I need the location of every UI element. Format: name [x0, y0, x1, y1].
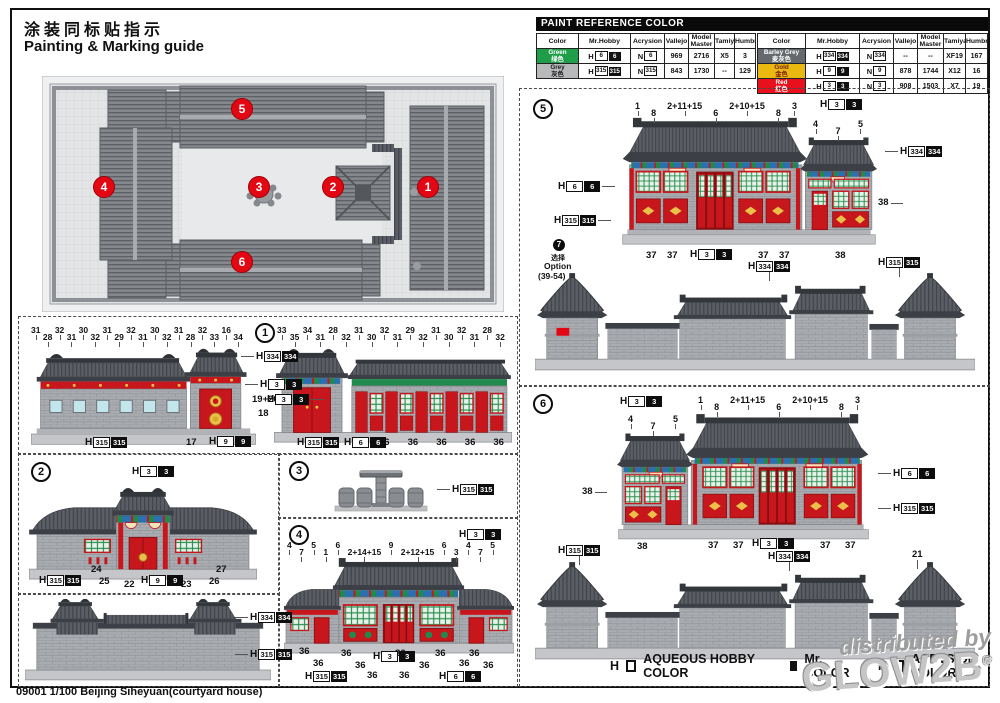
callout: 32	[55, 325, 64, 335]
section-badge-2: 2	[31, 462, 51, 482]
callout: 31	[102, 325, 111, 335]
callout: 26	[209, 576, 220, 587]
callout: 31	[470, 332, 479, 342]
callout: 38	[637, 541, 648, 552]
paint-chip-h315: H315315	[39, 575, 81, 586]
callout: 2+14+15	[348, 547, 382, 557]
callout: 36	[408, 437, 419, 448]
callout: 37	[708, 540, 719, 551]
page-title-zh: 涂装同标贴指示	[24, 16, 164, 40]
col-humbrol: Humbrol	[966, 34, 988, 49]
callout: 37	[667, 250, 678, 261]
callout: 8	[776, 108, 781, 118]
cell-modelmaster: 2716	[689, 49, 715, 64]
paint-table-header: PAINT REFERENCE COLOR	[536, 17, 988, 31]
callout: 36	[436, 437, 447, 448]
paint-row-barleygrey: Barley Grey麦灰色 H334334 N334 -- -- XF19 1…	[758, 49, 988, 64]
paint-code-legend: H AQUEOUS HOBBY COLOR Mr. COLOR N ACRYSI…	[610, 652, 1000, 680]
paint-chip-h9: H99	[141, 575, 183, 586]
paint-chip-h3: H33	[267, 394, 324, 405]
page-title-en: Painting & Marking guide	[24, 38, 204, 55]
callout-row: 475	[813, 119, 863, 129]
paint-chip-h315: H315315	[85, 437, 127, 448]
elevation-4-hall	[284, 557, 514, 655]
cell-vallejo: 878	[894, 64, 918, 79]
paint-chip-h315: H315315	[437, 484, 494, 495]
callout: 37	[820, 540, 831, 551]
callout: 36	[435, 648, 446, 659]
callout: 36	[419, 660, 430, 671]
paint-chip-h9: H99	[209, 436, 251, 447]
callout: 2+11+15	[667, 101, 702, 111]
callout: 2+10+15	[792, 395, 828, 405]
paint-chip-h3: H33	[459, 529, 501, 540]
callout: 1	[635, 101, 640, 111]
paint-chip-h3: H33	[132, 466, 174, 477]
paint-chip-h3: H33	[245, 379, 302, 390]
callout: 6	[336, 540, 341, 550]
callout: 8	[651, 108, 656, 118]
callout: 31	[431, 325, 440, 335]
filled-square-icon	[790, 661, 798, 671]
callout: 37	[733, 540, 744, 551]
section-badge-5: 5	[533, 99, 553, 119]
callout: 38	[582, 486, 593, 497]
callout: 5	[858, 119, 863, 129]
col-acrysion: Acrysion	[631, 34, 665, 49]
paint-chip-h334: H334334	[768, 551, 810, 562]
cell-humbrol: 3	[735, 49, 756, 64]
callout: 33	[210, 332, 219, 342]
paint-chip-h6: H66	[558, 181, 615, 192]
cell-modelmaster: --	[918, 49, 944, 64]
cell-mrhobby: H315315	[579, 64, 631, 79]
callout: 8	[714, 402, 719, 412]
paint-chip-h334: H334334	[241, 351, 298, 362]
stone-table-drawing	[331, 464, 431, 514]
callout: 3	[855, 395, 860, 405]
outline-square-icon	[894, 660, 904, 672]
callout: 30	[79, 325, 88, 335]
section-badge-4: 4	[289, 525, 309, 545]
paint-row-grey: Grey灰色 H315315 N315 843 1730 -- 129	[537, 64, 756, 79]
callout: 35	[290, 332, 299, 342]
paint-chip-h334: H334334	[748, 261, 790, 272]
callout: 16	[222, 325, 231, 335]
col-vallejo: Vallejo	[894, 34, 918, 49]
callout: 7	[299, 547, 304, 557]
callout: 36	[341, 648, 352, 659]
callout: 5	[490, 540, 495, 550]
callout: 1	[698, 395, 703, 405]
callout: 34	[233, 332, 242, 342]
elevation-5-courtyard-wall	[535, 273, 975, 371]
cell-tamiya: X12	[944, 64, 966, 79]
option-label-en: Option	[544, 261, 571, 271]
color-swatch: Gold金色	[758, 64, 806, 79]
cell-acrysion: N6	[631, 49, 665, 64]
col-tamiya: Tamiya	[944, 34, 966, 49]
callout: 7	[835, 126, 840, 136]
callout: 31	[174, 325, 183, 335]
callout: 36	[465, 437, 476, 448]
cell-acrysion: N315	[631, 64, 665, 79]
plan-badge-1: 1	[417, 176, 439, 198]
paint-chip-h315: H315315	[235, 649, 292, 660]
cell-tamiya: X5	[715, 49, 735, 64]
callout: 24	[91, 564, 102, 575]
col-tamiya: Tamiya	[715, 34, 735, 49]
paint-chip-h315: H315315	[558, 545, 600, 556]
callout: 36	[459, 658, 470, 669]
callout: 31	[316, 332, 325, 342]
callout: 2+12+15	[401, 547, 435, 557]
paint-chip-h315: H315315	[297, 437, 339, 448]
legend-n-prefix: N	[878, 659, 887, 673]
cell-acrysion: N334	[860, 49, 894, 64]
callout: 3	[454, 547, 459, 557]
callout: 37	[646, 250, 657, 261]
section-1: 1 312832313032312932313032312832331634	[18, 316, 518, 455]
elevation-6-main-hall	[617, 413, 870, 540]
callout: 32	[341, 332, 350, 342]
callout: 7	[650, 421, 655, 431]
callout: 18	[258, 408, 269, 419]
legend-aqueous-label: AQUEOUS HOBBY COLOR	[643, 652, 768, 680]
cell-acrysion: N9	[860, 64, 894, 79]
cell-vallejo: --	[894, 49, 918, 64]
plan-badge-5: 5	[231, 98, 253, 120]
callout: 32	[495, 332, 504, 342]
paint-chip-h3: H33	[620, 396, 662, 407]
callout-row: 333534312832313032312932313032312832	[277, 325, 505, 335]
plan-view: 1 2 3 4 5 6	[42, 76, 504, 312]
callout-row: 182+11+1562+10+1583	[698, 395, 860, 405]
callout: 27	[216, 564, 227, 575]
section-6: 6 H33 475 182+11+1562+10+1583 38 H66 H31…	[519, 385, 990, 687]
callout: 30	[150, 325, 159, 335]
cell-mrhobby: H334334	[806, 49, 860, 64]
plan-badge-2: 2	[322, 176, 344, 198]
callout: 8	[839, 402, 844, 412]
color-swatch: Green绿色	[537, 49, 579, 64]
kit-number-footer: 09001 1/100 Beijing Siheyuan(courtyard h…	[16, 686, 262, 698]
callout: 2+10+15	[729, 101, 765, 111]
paint-chip-h334: H334334	[885, 146, 942, 157]
callout: 36	[299, 646, 310, 657]
paint-table-columns: Color Mr.Hobby Acrysion Vallejo Model Ma…	[758, 34, 988, 49]
callout: 6	[442, 540, 447, 550]
paint-chip-h6: H66	[439, 671, 481, 682]
callout: 32	[162, 332, 171, 342]
callout: 28	[328, 325, 337, 335]
callout: 37	[779, 250, 790, 261]
cell-mrhobby: H99	[806, 64, 860, 79]
cell-modelmaster: 1744	[918, 64, 944, 79]
callout: 31	[138, 332, 147, 342]
callout: 4	[628, 414, 633, 424]
cell-vallejo: 843	[665, 64, 689, 79]
callout: 36	[483, 660, 494, 671]
callout: 32	[91, 332, 100, 342]
cell-modelmaster: 1730	[689, 64, 715, 79]
plan-badge-3: 3	[248, 176, 270, 198]
callout: 36	[367, 670, 378, 681]
paint-chip-h6: H66	[344, 437, 386, 448]
callout: 2+11+15	[730, 395, 765, 405]
callout: 1	[323, 547, 328, 557]
callout: 30	[444, 332, 453, 342]
elevation-1-outer	[31, 346, 256, 449]
paint-chip-h334: H334334	[235, 612, 292, 623]
callout: 7	[478, 547, 483, 557]
paint-chip-h315: H315315	[878, 503, 935, 514]
section-2-rear: H334334 H315315	[18, 593, 280, 687]
paint-chip-h6: H66	[878, 468, 935, 479]
callout: 36	[399, 670, 410, 681]
paint-table-right: Color Mr.Hobby Acrysion Vallejo Model Ma…	[757, 33, 988, 94]
col-humbrol: Humbrol	[735, 34, 756, 49]
paint-chip-h315: H315315	[878, 257, 920, 268]
cell-tamiya: --	[715, 64, 735, 79]
callout: 17	[186, 437, 197, 448]
col-mrhobby: Mr.Hobby	[806, 34, 860, 49]
callout: 31	[354, 325, 363, 335]
col-mrhobby: Mr.Hobby	[579, 34, 631, 49]
callout: 31	[393, 332, 402, 342]
callout: 4	[813, 119, 818, 129]
outline-square-icon	[626, 660, 636, 672]
paint-table-left: Color Mr.Hobby Acrysion Vallejo Model Ma…	[536, 33, 756, 79]
callout: 29	[405, 325, 414, 335]
callout: 5	[311, 540, 316, 550]
legend-acrysion-label: ACRYSION COLOR	[911, 652, 1000, 680]
cell-tamiya: XF19	[944, 49, 966, 64]
paint-chip-h3: H33	[752, 538, 794, 549]
paint-chip-h3: H33	[690, 249, 732, 260]
callout: 3	[792, 101, 797, 111]
elevation-6-courtyard-wall	[535, 562, 975, 660]
plan-badge-4: 4	[93, 176, 115, 198]
callout: 36	[469, 648, 480, 659]
section-4: 4 H33 475162+14+1592+12+1563475	[278, 517, 518, 687]
paint-row-gold: Gold金色 H99 N9 878 1744 X12 16	[758, 64, 988, 79]
callout: 28	[186, 332, 195, 342]
callout: 5	[673, 414, 678, 424]
callout-row: 182+11+1562+10+1583	[635, 101, 797, 111]
callout: 37	[845, 540, 856, 551]
section-2: 2 H33 24 25 2	[18, 453, 280, 595]
callout: 38	[835, 250, 846, 261]
callout: 32	[126, 325, 135, 335]
plan-badge-6: 6	[231, 251, 253, 273]
col-modelmaster: Model Master	[689, 34, 715, 49]
cell-humbrol: 167	[966, 49, 988, 64]
callout: 36	[313, 658, 324, 669]
section-5: 5 182+11+1562+10+1583 H33 475 H334334	[519, 88, 990, 387]
paint-chip-h3: H33	[373, 651, 415, 662]
cell-vallejo: 969	[665, 49, 689, 64]
callout: 6	[713, 108, 718, 118]
callout: 9	[389, 540, 394, 550]
callout-row: 475162+14+1592+12+1563475	[287, 540, 495, 550]
paint-chip-h315: H315315	[554, 215, 611, 226]
cell-mrhobby: H66	[579, 49, 631, 64]
section-badge-6: 6	[533, 394, 553, 414]
callout: 6	[776, 402, 781, 412]
col-vallejo: Vallejo	[665, 34, 689, 49]
callout: 29	[114, 332, 123, 342]
section-badge-3: 3	[289, 461, 309, 481]
legend-mrcolor-label: Mr. COLOR	[804, 652, 856, 680]
color-swatch: Grey灰色	[537, 64, 579, 79]
cell-humbrol: 16	[966, 64, 988, 79]
cell-humbrol: 129	[735, 64, 756, 79]
callout: 32	[418, 332, 427, 342]
section-badge-1: 1	[255, 323, 275, 343]
callout: 4	[466, 540, 471, 550]
callout: 31	[67, 332, 76, 342]
callout: 21	[912, 549, 923, 560]
callout: 34	[303, 325, 312, 335]
callout: 28	[483, 325, 492, 335]
callout-row: 475	[628, 414, 678, 424]
callout: 32	[198, 325, 207, 335]
callout: 32	[457, 325, 466, 335]
callout: 22	[124, 579, 135, 590]
callout: 31	[31, 325, 40, 335]
paint-row-green: Green绿色 H66 N6 969 2716 X5 3	[537, 49, 756, 64]
col-modelmaster: Model Master	[918, 34, 944, 49]
callout: 37	[758, 250, 769, 261]
option-range: (39-54)	[538, 271, 565, 281]
callout: 33	[277, 325, 286, 335]
col-acrysion: Acrysion	[860, 34, 894, 49]
callout: 28	[43, 332, 52, 342]
paint-chip-h315: H315315	[305, 671, 347, 682]
callout: 25	[99, 576, 110, 587]
instruction-sheet: 涂装同标贴指示 Painting & Marking guide PAINT R…	[0, 0, 1000, 703]
color-swatch: Barley Grey麦灰色	[758, 49, 806, 64]
option-badge: 7	[553, 239, 565, 251]
callout-row: 3636363636	[379, 437, 504, 448]
paint-table-columns: Color Mr.Hobby Acrysion Vallejo Model Ma…	[537, 34, 756, 49]
col-color: Color	[537, 34, 579, 49]
col-color: Color	[758, 34, 806, 49]
callout: 38	[878, 197, 889, 208]
option-red-mark	[557, 328, 570, 336]
callout: 36	[355, 660, 366, 671]
callout: 36	[493, 437, 504, 448]
section-3: 3 H315315	[278, 453, 518, 519]
callout: 32	[380, 325, 389, 335]
legend-h-prefix: H	[610, 659, 619, 673]
callout: 30	[367, 332, 376, 342]
paint-chip-h3: H33	[820, 99, 862, 110]
callout-row: 312832313032312932313032312832331634	[31, 325, 243, 335]
